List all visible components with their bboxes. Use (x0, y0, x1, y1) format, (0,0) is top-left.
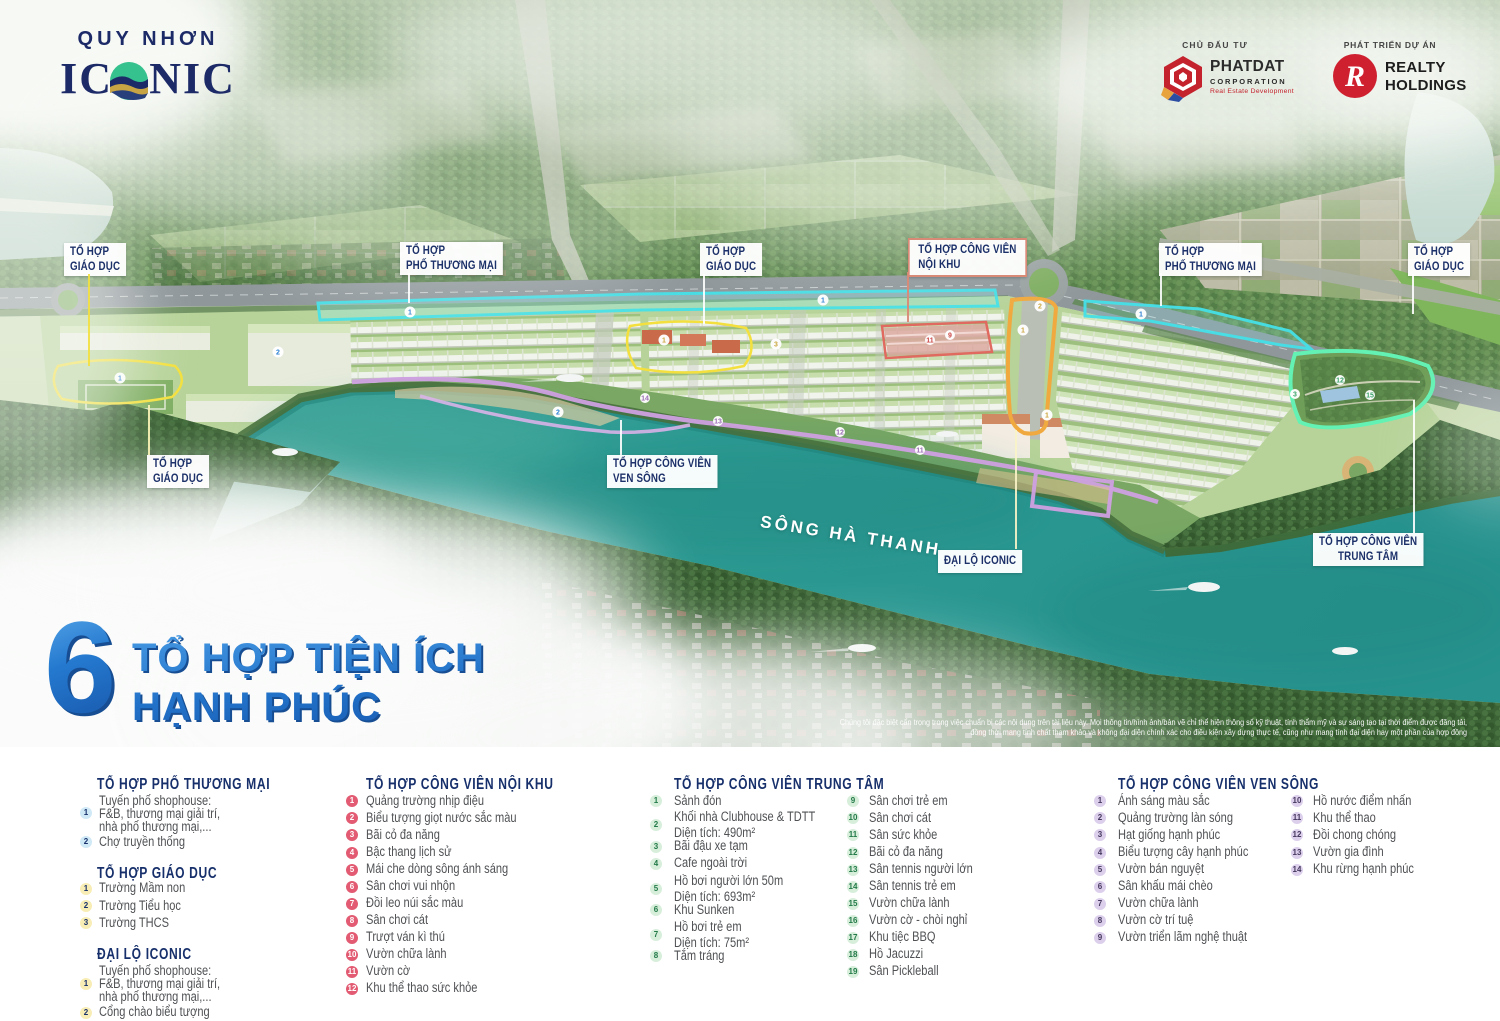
svg-text:11: 11 (916, 448, 924, 455)
svg-text:1: 1 (408, 310, 412, 317)
svg-text:14: 14 (641, 396, 649, 403)
svg-text:1: 1 (662, 338, 666, 345)
svg-text:13: 13 (714, 419, 722, 426)
svg-text:1: 1 (1139, 312, 1143, 319)
svg-text:11: 11 (926, 338, 934, 345)
svg-text:2: 2 (556, 410, 560, 417)
svg-text:1: 1 (821, 298, 825, 305)
svg-text:15: 15 (1366, 393, 1374, 400)
svg-text:12: 12 (836, 430, 844, 437)
svg-text:12: 12 (1336, 378, 1344, 385)
svg-text:1: 1 (1045, 413, 1049, 420)
svg-text:2: 2 (276, 350, 280, 357)
svg-text:3: 3 (1293, 392, 1297, 399)
svg-text:2: 2 (1038, 304, 1042, 311)
svg-text:3: 3 (774, 342, 778, 349)
svg-text:9: 9 (948, 333, 952, 340)
svg-text:1: 1 (1021, 328, 1025, 335)
svg-text:R: R (1344, 60, 1365, 93)
